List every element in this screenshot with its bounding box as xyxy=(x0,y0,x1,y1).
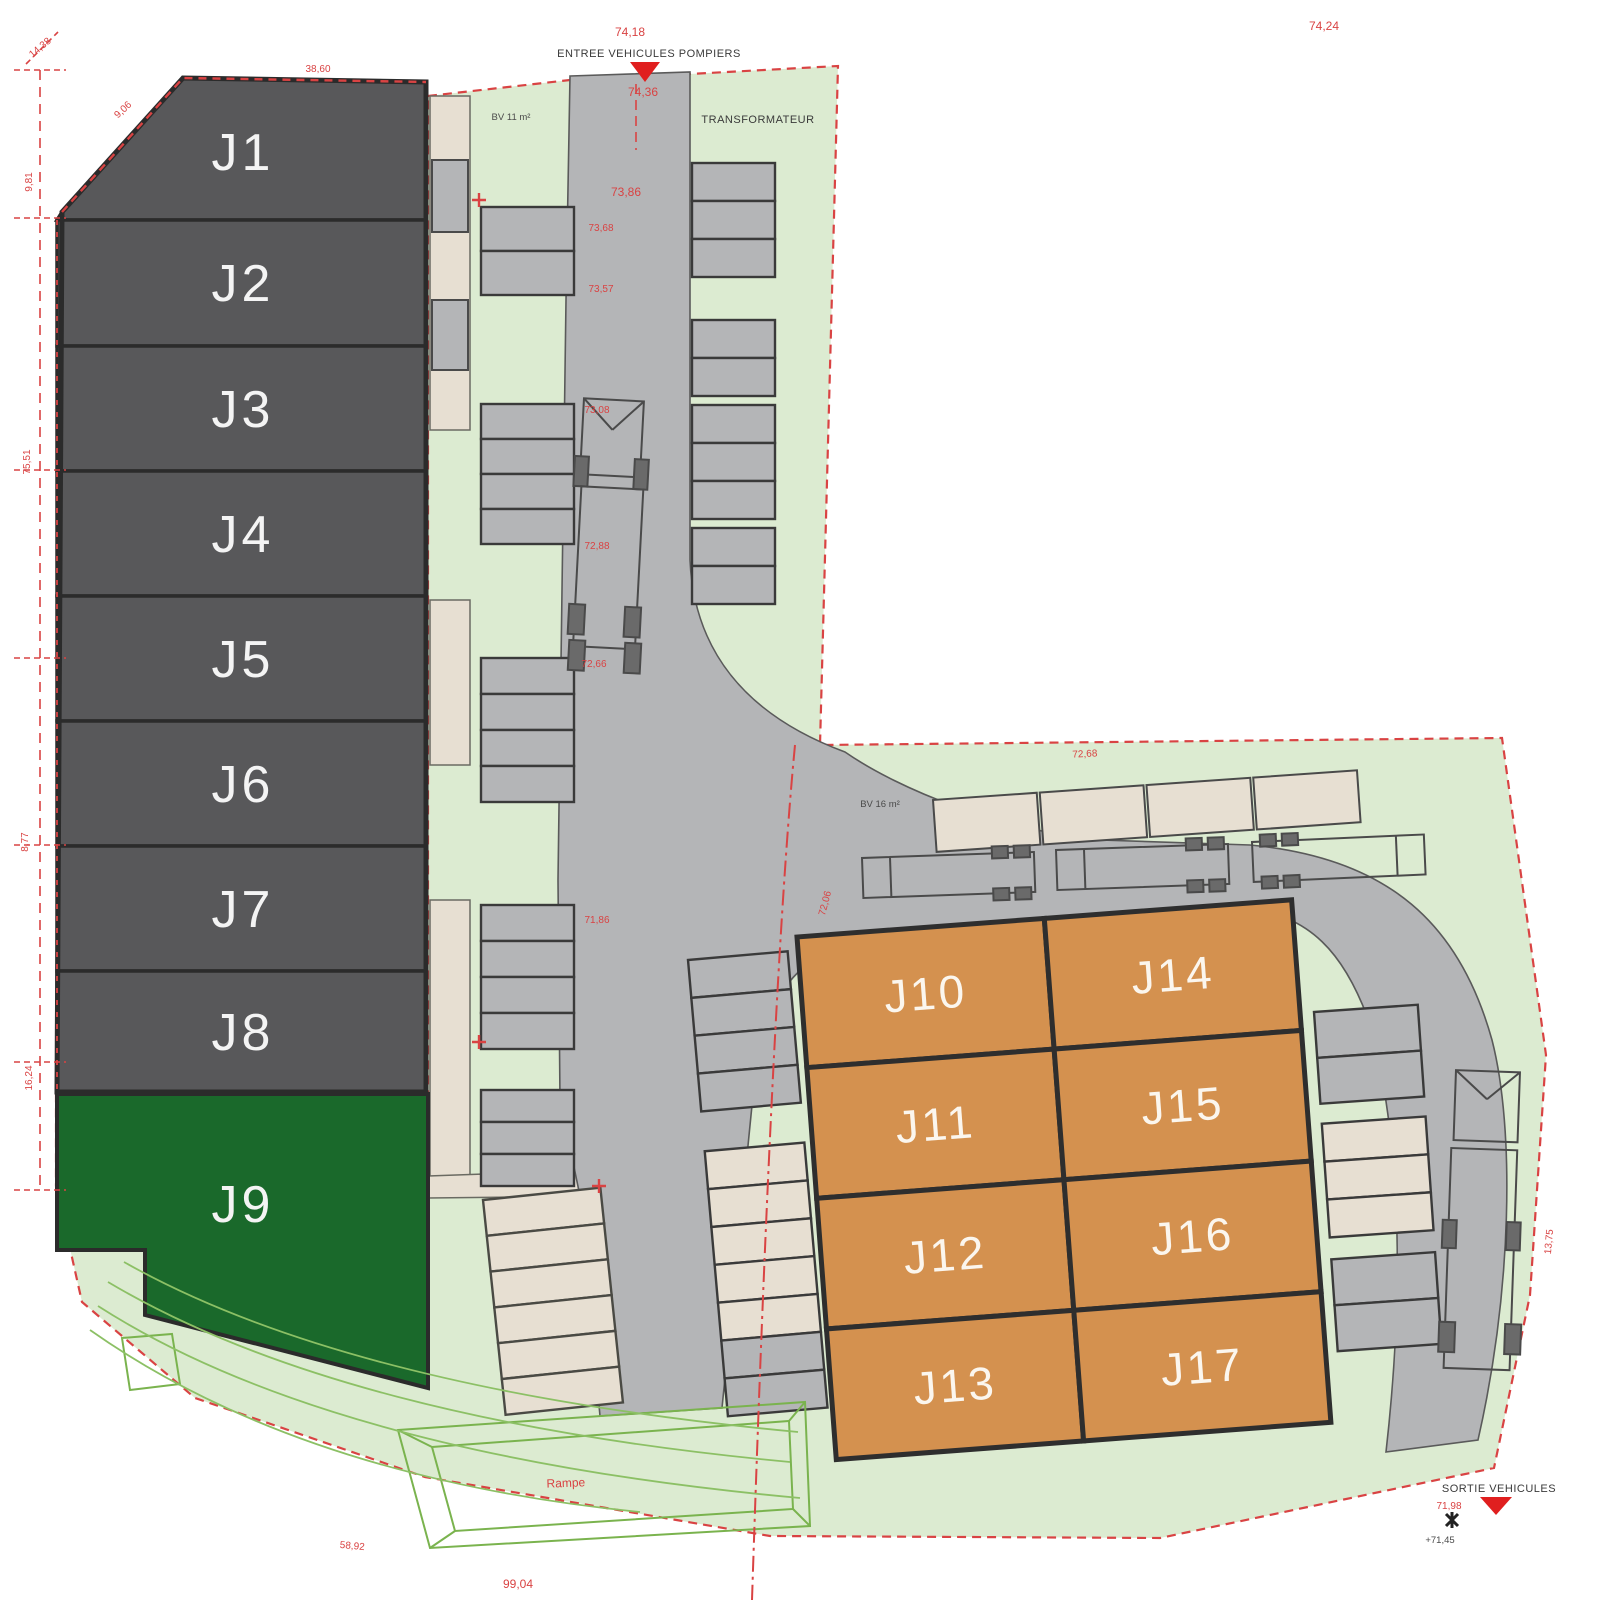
dim-71-86: 71,86 xyxy=(584,915,609,926)
building-block xyxy=(57,78,426,1092)
plot-J11-label: J11 xyxy=(894,1095,977,1153)
dim-75-51: 75,51 xyxy=(22,449,33,474)
dim-99-04: 99,04 xyxy=(503,1577,533,1591)
dim-72-88: 72,88 xyxy=(584,541,609,552)
dim-73-86: 73,86 xyxy=(611,185,641,199)
dim-73-08: 73,08 xyxy=(584,405,609,416)
dim-rampe: Rampe xyxy=(546,1475,585,1490)
parking-stalls-right-of-plots xyxy=(1314,1005,1441,1351)
dim-74-18: 74,18 xyxy=(615,25,645,39)
dim-13-75: 13,75 xyxy=(1543,1228,1556,1254)
unit-J5-label: J5 xyxy=(212,631,275,689)
unit-J7-label: J7 xyxy=(212,881,275,939)
lot-J9-label: J9 xyxy=(212,1176,275,1234)
unit-J4-label: J4 xyxy=(212,506,275,564)
utility-left-label: BV 11 m² xyxy=(492,112,531,123)
dim-74-24: 74,24 xyxy=(1309,19,1339,33)
exit-label: SORTIE VEHICULES xyxy=(1442,1483,1556,1495)
exit-level-label: +71,45 xyxy=(1425,1535,1454,1546)
exit-marker: SORTIE VEHICULES +71,45 xyxy=(1425,1483,1556,1546)
plots-grid: J10 J11 J12 J13 J14 J15 J16 J17 xyxy=(797,900,1331,1460)
dim-73-57: 73,57 xyxy=(588,284,613,295)
utility-dock-label: BV 16 m² xyxy=(860,799,900,810)
site-plan-svg: J9 J1 J2 J3 J4 J5 J6 J7 J8 xyxy=(0,0,1600,1600)
unit-J1-label: J1 xyxy=(212,124,275,182)
dim-72-66: 72,66 xyxy=(581,659,606,670)
exit-benchmark-icon xyxy=(1446,1512,1458,1528)
plot-J17-label: J17 xyxy=(1159,1338,1246,1396)
exit-arrow-icon xyxy=(1480,1497,1512,1515)
dim-16-24: 16,24 xyxy=(24,1065,35,1090)
dim-38-60: 38,60 xyxy=(305,64,330,75)
dim-58-92: 58,92 xyxy=(339,1540,365,1553)
dim-9-81: 9,81 xyxy=(24,172,35,192)
plot-J10-label: J10 xyxy=(882,964,969,1022)
unit-J3-label: J3 xyxy=(212,381,275,439)
dim-8-77: 8,77 xyxy=(20,832,31,852)
plot-J13-label: J13 xyxy=(912,1356,999,1414)
parking-stalls-lower-left xyxy=(483,1188,623,1415)
parking-stalls-right-road xyxy=(692,163,775,604)
unit-J8-label: J8 xyxy=(212,1004,275,1062)
entry-label: ENTREE VEHICULES POMPIERS xyxy=(557,48,741,60)
transformer-label: TRANSFORMATEUR xyxy=(701,114,814,126)
dim-73-68: 73,68 xyxy=(588,223,613,234)
unit-J6-label: J6 xyxy=(212,756,275,814)
dim-9-06: 9,06 xyxy=(112,99,134,121)
dim-72-68: 72,68 xyxy=(1072,748,1098,760)
dim-74-36: 74,36 xyxy=(628,85,658,99)
dim-71-98: 71,98 xyxy=(1436,1501,1461,1512)
site-plan-canvas: J9 J1 J2 J3 J4 J5 J6 J7 J8 xyxy=(0,0,1600,1600)
unit-J2-label: J2 xyxy=(212,255,275,313)
plot-J15-label: J15 xyxy=(1139,1077,1226,1135)
plot-J12-label: J12 xyxy=(902,1226,989,1284)
plot-J14-label: J14 xyxy=(1129,946,1216,1004)
plot-J16-label: J16 xyxy=(1149,1207,1236,1265)
